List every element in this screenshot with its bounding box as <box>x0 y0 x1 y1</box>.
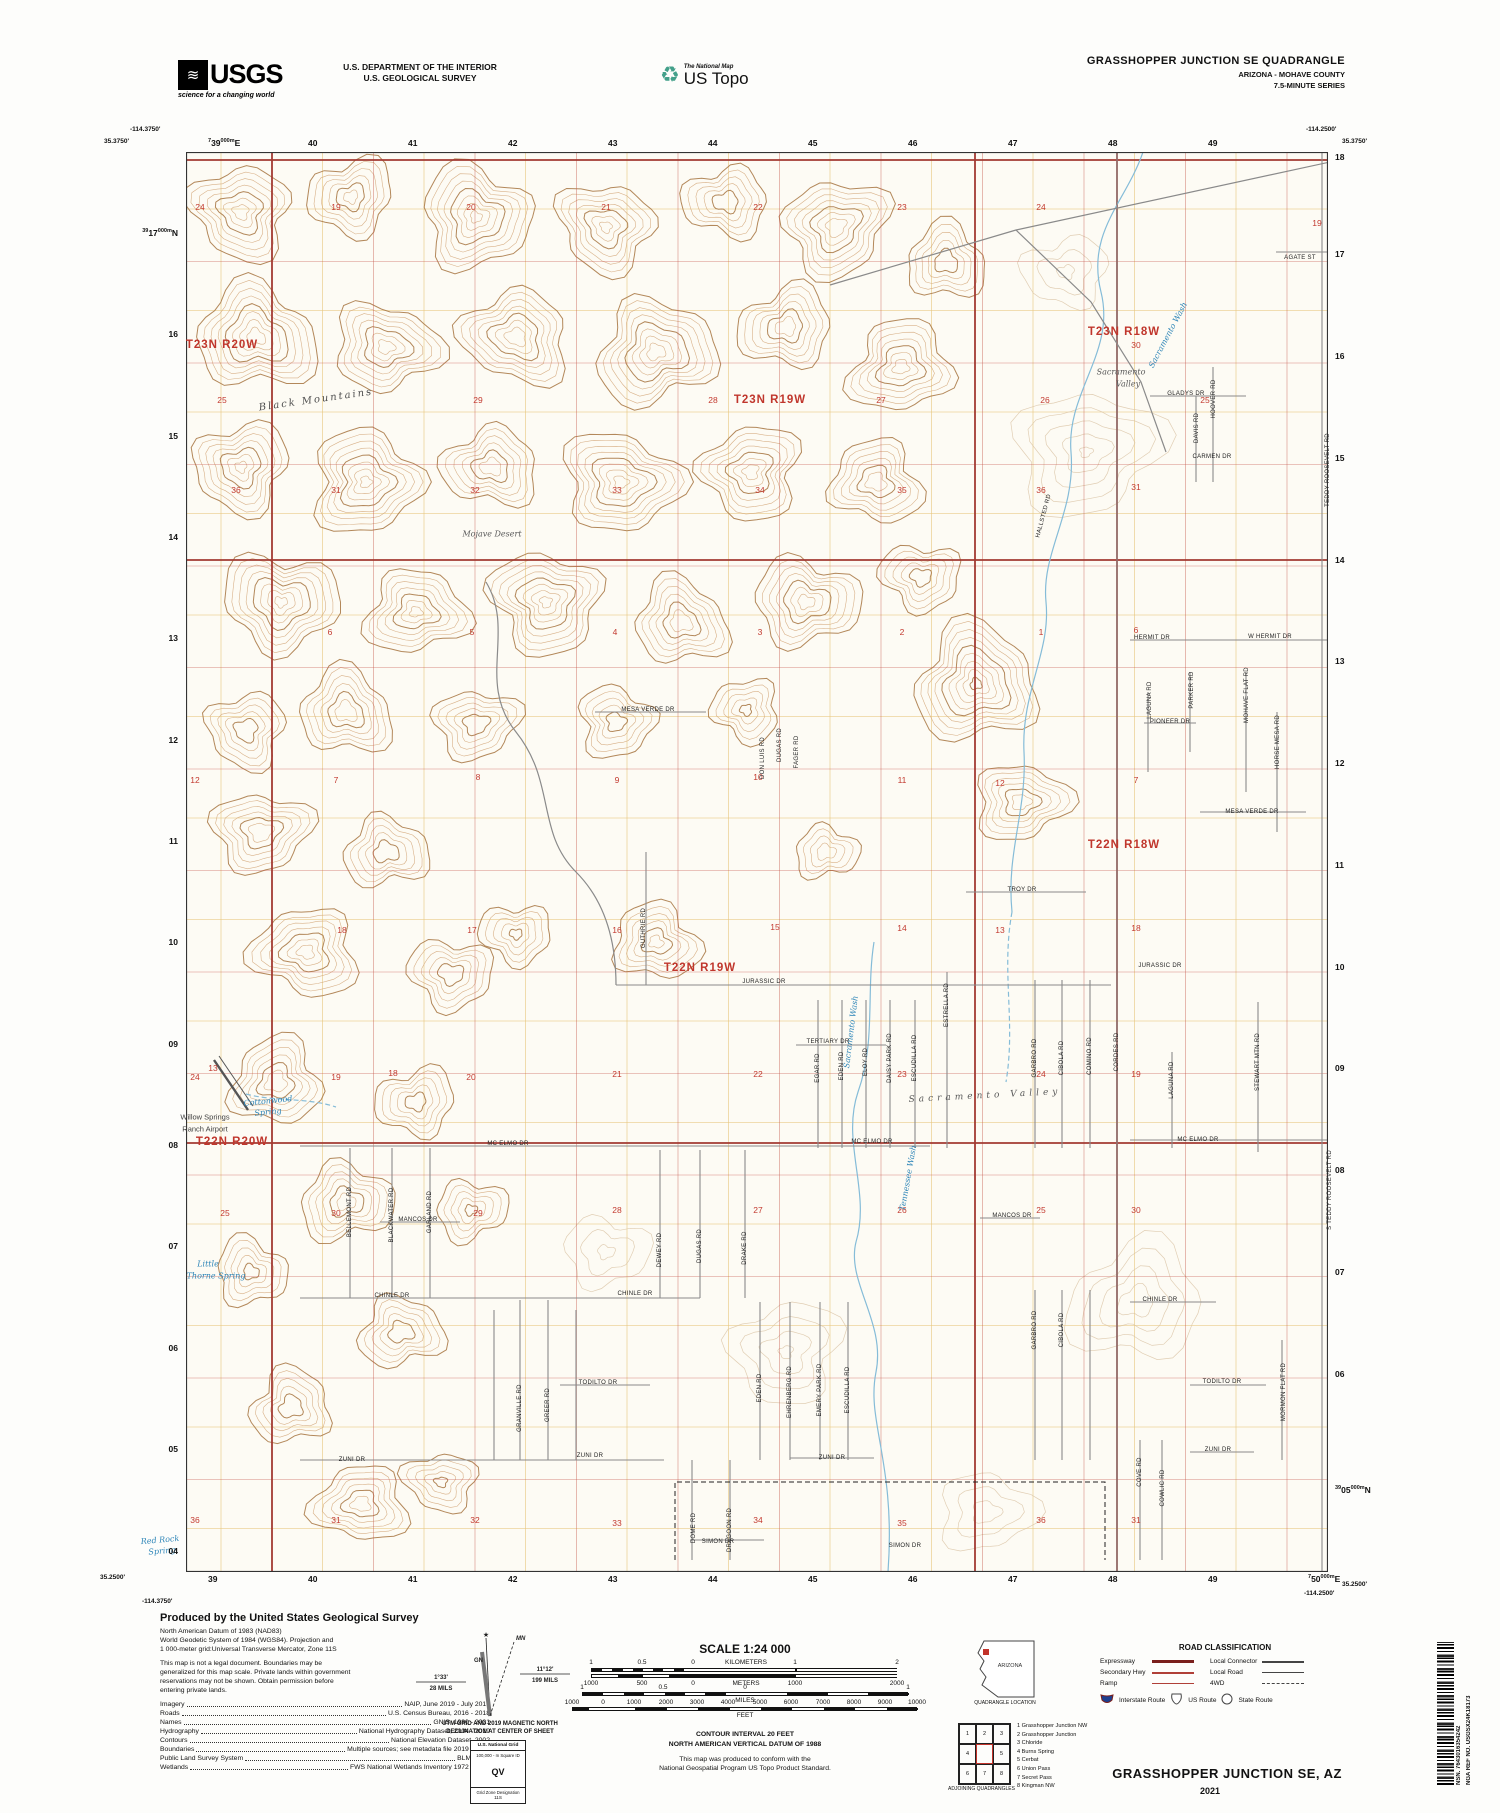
grid-label-left: 05 <box>169 1444 178 1454</box>
grid-label-left: 14 <box>169 532 178 542</box>
scale-bar-segment <box>612 1669 622 1671</box>
scale-bar-segment <box>761 1708 792 1710</box>
us-route-shield-icon <box>1170 1693 1183 1707</box>
road-class-right-label: Local Road <box>1210 1669 1262 1676</box>
svg-text:MN: MN <box>516 1636 526 1642</box>
road-class-right-sample <box>1262 1661 1304 1663</box>
grid-label-right: 15 <box>1335 453 1344 463</box>
grid-label-top: 46 <box>908 138 917 148</box>
feet-label: 5000 <box>753 1699 767 1706</box>
feet-label: 1000 <box>627 1699 641 1706</box>
source-key: Hydrography <box>160 1727 199 1736</box>
grid-label-top: 47 <box>1008 138 1017 148</box>
scale-bar-segment <box>855 1708 886 1710</box>
scale-bar-segment <box>623 1669 633 1671</box>
barcode-nga-ref: NGA REF NO. USGSX24K18173 <box>1466 1642 1472 1785</box>
grid-label-bottom: 44 <box>708 1574 717 1584</box>
quadrangle-location-caption: QUADRANGLE LOCATION <box>950 1700 1060 1706</box>
grid-label-bottom: 40 <box>308 1574 317 1584</box>
road-class-row: Secondary HwyLocal Road <box>1100 1669 1350 1676</box>
grid-label-bottom: 39 <box>208 1574 217 1584</box>
scale-bar-segment <box>705 1693 725 1695</box>
grid-label-top: 44 <box>708 138 717 148</box>
scale-bar-segment <box>667 1708 698 1710</box>
scale-bar-segment <box>643 1669 653 1671</box>
adjoining-cell: 4 <box>959 1744 976 1764</box>
route-shields-row: Interstate RouteUS RouteState Route <box>1100 1693 1350 1707</box>
grid-label-left: 09 <box>169 1039 178 1049</box>
scale-bar-segment <box>887 1708 918 1710</box>
dotted-leader <box>190 1763 348 1770</box>
usng-zone-label: Grid Zone Designation <box>471 1787 525 1795</box>
scale-bar-segment <box>746 1693 787 1695</box>
grid-label-right: 16 <box>1335 351 1344 361</box>
meter-label: 1000 <box>584 1680 598 1687</box>
road-class-right-sample <box>1262 1683 1304 1684</box>
scale-bar-segment <box>635 1708 666 1710</box>
road-classification-title: ROAD CLASSIFICATION <box>1100 1643 1350 1652</box>
usgs-topo-sheet: { "header": { "usgs_logo": "USGS", "usgs… <box>0 0 1500 1813</box>
feet-label: 8000 <box>847 1699 861 1706</box>
adjoining-center-cell <box>976 1744 993 1764</box>
scale-bar-segment <box>796 1669 898 1671</box>
adjoining-quad-name: 4 Burns Spring <box>1017 1748 1087 1757</box>
scale-bar-miles <box>582 1692 908 1696</box>
usgs-tagline: science for a changing world <box>178 92 274 99</box>
feet-label: 2000 <box>659 1699 673 1706</box>
source-key: Names <box>160 1718 182 1727</box>
road-class-right-sample <box>1262 1672 1304 1673</box>
scale-bar-segment <box>604 1708 635 1710</box>
scale-bar-segment <box>618 1675 644 1677</box>
quad-subtitle-series: 7.5-MINUTE SERIES <box>925 81 1345 90</box>
feet-unit-label: FEET <box>737 1712 754 1719</box>
corner-lat-tr: 35.3750' <box>1342 138 1367 145</box>
scale-bar-segment <box>633 1669 643 1671</box>
scale-bar-segment <box>787 1693 828 1695</box>
feet-label: 1000 <box>565 1699 579 1706</box>
usng-box: U.S. National Grid 100,000 - m Square ID… <box>470 1740 526 1804</box>
grid-label-right: 07 <box>1335 1267 1344 1277</box>
grid-label-bottom: 47 <box>1008 1574 1017 1584</box>
adjoining-quadrangles-caption: ADJOINING QUADRANGLES <box>948 1786 1028 1792</box>
grid-label-top: 42 <box>508 138 517 148</box>
svg-text:11°12': 11°12' <box>537 1667 554 1673</box>
grid-label-right: 18 <box>1335 152 1344 162</box>
grid-label-bottom: 41 <box>408 1574 417 1584</box>
road-classification-rows: ExpresswayLocal ConnectorSecondary HwyLo… <box>1100 1658 1350 1687</box>
grid-label-bottom: 45 <box>808 1574 817 1584</box>
grid-label-right: 06 <box>1335 1369 1344 1379</box>
feet-label: 7000 <box>816 1699 830 1706</box>
grid-label-top: 41 <box>408 138 417 148</box>
quad-subtitle-county: ARIZONA - MOHAVE COUNTY <box>925 70 1345 79</box>
sheet-year: 2021 <box>1150 1786 1270 1796</box>
scale-bar-segment <box>643 1675 669 1677</box>
feet-label: 3000 <box>690 1699 704 1706</box>
adjoining-cell: 2 <box>976 1724 993 1744</box>
adjoining-cell: 3 <box>993 1724 1010 1744</box>
scale-bar-km <box>591 1668 897 1672</box>
feet-label: 0 <box>601 1699 605 1706</box>
scale-bar-segment <box>730 1708 761 1710</box>
dotted-leader <box>245 1754 455 1761</box>
corner-lat-bl: 35.2500' <box>100 1574 125 1581</box>
scale-bar-segment <box>624 1693 644 1695</box>
grid-label-left: 15 <box>169 431 178 441</box>
source-key: Wetlands <box>160 1763 188 1772</box>
interstate-shield-icon <box>1100 1693 1114 1707</box>
route-shield-label: Interstate Route <box>1119 1697 1165 1704</box>
scale-bar-segment <box>792 1708 823 1710</box>
usng-square-label: 100,000 - m Square ID <box>471 1753 525 1758</box>
scale-bar-segment <box>583 1693 603 1695</box>
vertical-datum-note: NORTH AMERICAN VERTICAL DATUM OF 1988 <box>595 1741 895 1748</box>
scale-bar-segment <box>653 1669 663 1671</box>
mile-label: 0 <box>743 1684 747 1691</box>
grid-label-left: 08 <box>169 1140 178 1150</box>
contour-interval-note: CONTOUR INTERVAL 20 FEET <box>595 1731 895 1738</box>
route-shield-label: State Route <box>1238 1697 1272 1704</box>
scale-bar-segment <box>868 1693 909 1695</box>
data-source-row: BoundariesMultiple sources; see metadata… <box>160 1745 490 1754</box>
scale-bar-segment <box>824 1708 855 1710</box>
scale-bar-segment <box>674 1669 684 1671</box>
grid-label-top: 48 <box>1108 138 1117 148</box>
grid-label-left: 12 <box>169 735 178 745</box>
svg-text:★: ★ <box>483 1631 489 1639</box>
adjoining-quad-name: 2 Grasshopper Junction <box>1017 1731 1087 1740</box>
grid-label-bottom: 43 <box>608 1574 617 1584</box>
km-label: 1 <box>589 1659 593 1666</box>
department-heading: U.S. DEPARTMENT OF THE INTERIOR U.S. GEO… <box>330 62 510 84</box>
credits-heading: Produced by the United States Geological… <box>160 1612 490 1624</box>
declination-caption: UTM GRID AND 2019 MAGNETIC NORTH DECLINA… <box>400 1720 600 1736</box>
km-label: 0 <box>691 1659 695 1666</box>
km-label: KILOMETERS <box>725 1659 767 1666</box>
scale-bar-meters <box>591 1674 897 1678</box>
state-location-inset: ARIZONA <box>972 1638 1038 1700</box>
corner-lat-br: 35.2500' <box>1342 1581 1367 1588</box>
grid-label-top: 43 <box>608 138 617 148</box>
scale-bar-segment <box>685 1693 705 1695</box>
source-key: Roads <box>160 1709 180 1718</box>
grid-label-bottom: 48 <box>1108 1574 1117 1584</box>
grid-label-bottom: 750000mE <box>1308 1574 1340 1584</box>
data-source-row: WetlandsFWS National Wetlands Inventory … <box>160 1763 490 1772</box>
adjoining-cell: 5 <box>993 1744 1010 1764</box>
scale-bar-segment <box>796 1675 898 1677</box>
grid-label-right: 08 <box>1335 1165 1344 1175</box>
scale-bar-segment <box>694 1675 796 1677</box>
km-label: 2 <box>895 1659 899 1666</box>
dotted-leader <box>184 1718 432 1725</box>
grid-label-bottom: 42 <box>508 1574 517 1584</box>
dotted-leader <box>190 1736 389 1743</box>
feet-label: 4000 <box>721 1699 735 1706</box>
adjoining-quad-name: 3 Chloride <box>1017 1739 1087 1748</box>
grid-label-right: 10 <box>1335 962 1344 972</box>
scale-bar-segment <box>592 1675 618 1677</box>
meter-label: 0 <box>691 1680 695 1687</box>
data-source-row: ContoursNational Elevation Dataset, 2002 <box>160 1736 490 1745</box>
grid-label-right: 09 <box>1335 1063 1344 1073</box>
scale-bar-segment <box>698 1708 729 1710</box>
map-canvas <box>186 152 1328 1572</box>
us-topo-icon: ♻ <box>660 62 680 88</box>
scale-bar-segment <box>795 1669 797 1671</box>
grid-label-top: 40 <box>308 138 317 148</box>
grid-label-right: 13 <box>1335 656 1344 666</box>
road-class-row: Ramp4WD <box>1100 1680 1350 1687</box>
usgs-logo: ≋ USGS <box>178 60 283 90</box>
mile-label: 1 <box>580 1684 584 1691</box>
meter-label: 2000 <box>890 1680 904 1687</box>
declination-caption-line1: UTM GRID AND 2019 MAGNETIC NORTH <box>400 1720 600 1728</box>
water-label: Spring <box>148 1545 176 1556</box>
scale-bar-segment <box>644 1693 664 1695</box>
conformance-note-line2: National Geospatial Program US Topo Prod… <box>595 1765 895 1772</box>
adjoining-quad-name: 5 Cerbat <box>1017 1756 1087 1765</box>
grid-label-left: 13 <box>169 633 178 643</box>
natmap-large-text: US Topo <box>684 70 749 87</box>
road-classification-legend: ROAD CLASSIFICATION ExpresswayLocal Conn… <box>1100 1643 1350 1707</box>
scale-bar-segment <box>592 1669 602 1671</box>
dotted-leader <box>182 1709 386 1716</box>
adjoining-quad-name: 1 Grasshopper Junction NW <box>1017 1722 1087 1731</box>
usgs-logo-text: USGS <box>210 60 283 88</box>
scale-bar-segment <box>663 1669 673 1671</box>
grid-label-left: 16 <box>169 329 178 339</box>
road-class-left-label: Expressway <box>1100 1658 1152 1665</box>
quadrangle-title-block: GRASSHOPPER JUNCTION SE QUADRANGLE ARIZO… <box>925 55 1345 90</box>
road-class-left-sample <box>1152 1660 1194 1663</box>
road-class-row: ExpresswayLocal Connector <box>1100 1658 1350 1665</box>
scale-bar-segment <box>669 1675 695 1677</box>
grid-label-left: 11 <box>169 836 178 846</box>
road-class-left-sample <box>1152 1683 1194 1684</box>
scale-bar-feet <box>572 1707 917 1711</box>
corner-lat-tl: 35.3750' <box>104 138 129 145</box>
state-route-circle-icon <box>1221 1693 1233 1707</box>
route-shield-label: US Route <box>1188 1697 1216 1704</box>
scale-bar-segment <box>589 1708 605 1710</box>
adjoining-cell: 1 <box>959 1724 976 1744</box>
usng-title: U.S. National Grid <box>471 1743 525 1751</box>
conformance-note-line1: This map was produced to conform with th… <box>595 1756 895 1763</box>
national-map-logo: ♻ The National Map US Topo <box>660 62 749 88</box>
grid-label-left: 06 <box>169 1343 178 1353</box>
feet-label: 6000 <box>784 1699 798 1706</box>
dotted-leader <box>187 1700 403 1707</box>
meter-label: 1000 <box>788 1680 802 1687</box>
svg-text:1°33': 1°33' <box>434 1675 448 1681</box>
corner-lon-bl: -114.3750' <box>142 1598 172 1605</box>
source-key: Boundaries <box>160 1745 194 1754</box>
source-value: FWS National Wetlands Inventory 1972 - 1… <box>350 1763 490 1772</box>
scale-bar-segment <box>665 1693 685 1695</box>
road-class-right-label: 4WD <box>1210 1680 1262 1687</box>
meter-label: 500 <box>637 1680 648 1687</box>
scale-bar-segment <box>684 1669 694 1671</box>
corner-lon-tl: -114.3750' <box>130 126 160 133</box>
source-value: Multiple sources; see metadata file 2019… <box>347 1745 490 1754</box>
grid-label-right: 14 <box>1335 555 1344 565</box>
km-label: 1 <box>793 1659 797 1666</box>
grid-label-right: 3905000mN <box>1335 1485 1371 1495</box>
scale-bar-segment <box>573 1708 589 1710</box>
grid-label-bottom: 49 <box>1208 1574 1217 1584</box>
grid-label-left: 04 <box>169 1546 178 1556</box>
water-label: Red Rock <box>140 1534 179 1546</box>
usng-zone: 11S <box>471 1795 525 1800</box>
grid-label-right: 17 <box>1335 249 1344 259</box>
svg-text:28 MILS: 28 MILS <box>430 1686 453 1692</box>
scale-bar-segment <box>603 1693 623 1695</box>
grid-label-right: 11 <box>1335 860 1344 870</box>
road-class-right-label: Local Connector <box>1210 1658 1262 1665</box>
scale-bar-segment <box>694 1669 796 1671</box>
corner-lon-tr: -114.2500' <box>1306 126 1336 133</box>
source-key: Contours <box>160 1736 188 1745</box>
dotted-leader <box>201 1727 357 1734</box>
road-class-left-label: Ramp <box>1100 1680 1152 1687</box>
dotted-leader <box>196 1745 345 1752</box>
scale-bar-segment <box>726 1693 746 1695</box>
svg-text:199 MILS: 199 MILS <box>532 1678 558 1684</box>
grid-label-top: 45 <box>808 138 817 148</box>
scale-bar-segment <box>602 1669 612 1671</box>
scale-bar-segment <box>828 1693 869 1695</box>
declination-caption-line2: DECLINATION AT CENTER OF SHEET <box>400 1728 600 1736</box>
grid-label-left: 07 <box>169 1241 178 1251</box>
barcode-nsn: NSN. 7643016354242 <box>1456 1642 1462 1785</box>
barcode <box>1437 1642 1454 1785</box>
road-class-left-sample <box>1152 1672 1194 1674</box>
grid-label-top: 49 <box>1208 138 1217 148</box>
feet-label: 10000 <box>908 1699 926 1706</box>
grid-label-left: 3917000mN <box>142 228 178 238</box>
road-class-left-label: Secondary Hwy <box>1100 1669 1152 1676</box>
grid-label-bottom: 46 <box>908 1574 917 1584</box>
corner-lon-br: -114.2500' <box>1304 1590 1334 1597</box>
mile-label: 0.5 <box>658 1684 667 1691</box>
mile-label: 1 <box>906 1684 910 1691</box>
scale-title: SCALE 1:24 000 <box>640 1642 850 1656</box>
km-label: 0.5 <box>637 1659 646 1666</box>
grid-label-top: 739000mE <box>208 138 240 148</box>
quad-title: GRASSHOPPER JUNCTION SE QUADRANGLE <box>925 55 1345 67</box>
source-key: Public Land Survey System <box>160 1754 243 1763</box>
feet-label: 9000 <box>878 1699 892 1706</box>
grid-label-left: 10 <box>169 937 178 947</box>
dept-line1: U.S. DEPARTMENT OF THE INTERIOR <box>330 62 510 73</box>
grid-label-right: 12 <box>1335 758 1344 768</box>
sheet-title: GRASSHOPPER JUNCTION SE, AZ <box>942 1766 1342 1781</box>
usgs-wave-icon: ≋ <box>178 60 208 90</box>
source-key: Imagery <box>160 1700 185 1709</box>
usng-square-id: QV <box>471 1767 525 1777</box>
dept-line2: U.S. GEOLOGICAL SURVEY <box>330 73 510 84</box>
data-source-row: Public Land Survey SystemBLM, 2017 <box>160 1754 490 1763</box>
svg-text:ARIZONA: ARIZONA <box>998 1663 1023 1669</box>
declination-diagram: ★GNMN1°33'28 MILS11°12'199 MILS <box>408 1630 578 1720</box>
svg-text:GN: GN <box>474 1658 483 1664</box>
